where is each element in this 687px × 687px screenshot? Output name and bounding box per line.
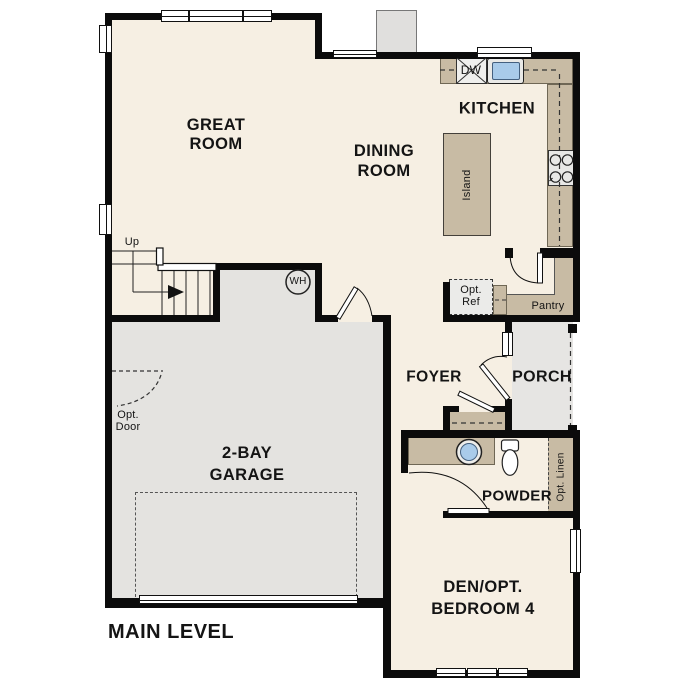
stair-rail (158, 264, 216, 271)
stair-rail-newel (157, 248, 164, 265)
pantry-door-arc (510, 253, 538, 283)
optional-linen-label: Opt. Linen (556, 452, 567, 501)
optional-door-label: Opt.Door (116, 409, 141, 433)
toilet-bowl (502, 450, 518, 476)
optional-refrigerator-label: Opt.Ref (460, 284, 482, 308)
powder-door-arc (409, 472, 487, 508)
foyer-label: FOYER (406, 368, 461, 387)
dining-room-label: DININGROOM (354, 141, 414, 181)
porch-label: PORCH (512, 368, 572, 387)
front-door-arc (481, 356, 507, 365)
closet-door-leaf (458, 391, 495, 412)
dishwasher-label: DW (461, 64, 481, 76)
powder-sink-basin (461, 444, 478, 461)
optional-door-arc (117, 375, 161, 406)
den-label: DEN/OPT.BEDROOM 4 (431, 576, 535, 620)
powder-room-label: POWDER (482, 487, 552, 506)
stairs-up-arrowhead (168, 285, 184, 299)
island-label: Island (461, 169, 473, 200)
upper-cabinet-dashed-line (440, 70, 560, 246)
pantry-door-leaf (538, 253, 543, 283)
stairs-up-label: Up (125, 236, 139, 248)
water-heater-label: WH (289, 276, 306, 288)
garage-label: 2-BAYGARAGE (210, 442, 285, 486)
great-room-label: GREATROOM (187, 116, 246, 154)
stove-burners (550, 155, 573, 182)
linework-overlay (0, 0, 687, 687)
pantry-label: Pantry (532, 300, 565, 312)
kitchen-label: KITCHEN (459, 100, 535, 119)
floor-plan: GREATROOM DININGROOM KITCHEN FOYER PORCH… (0, 0, 687, 687)
garage-entry-door-arc (357, 288, 372, 316)
plan-title: MAIN LEVEL (108, 621, 234, 644)
garage-entry-door-leaf (336, 287, 358, 319)
powder-door-leaf (448, 509, 489, 514)
front-door-leaf (480, 364, 510, 400)
